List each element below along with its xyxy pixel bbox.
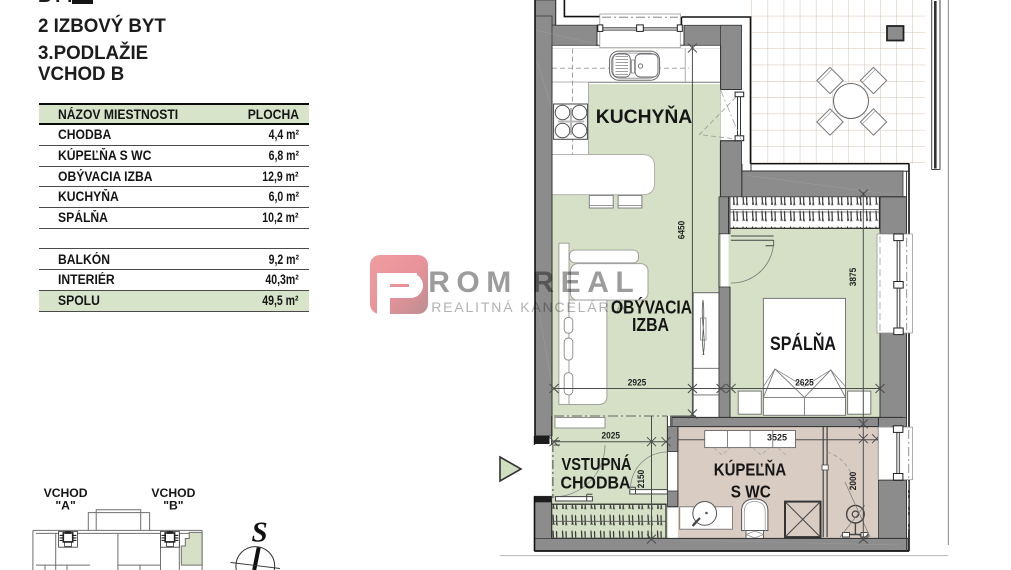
svg-text:SPÁLŇA: SPÁLŇA [770,331,836,355]
svg-text:6450: 6450 [677,221,688,240]
svg-text:KÚPEĽŇA: KÚPEĽŇA [714,458,787,479]
svg-text:S: S [252,517,268,549]
svg-text:IZBA: IZBA [632,314,669,335]
svg-text:2625: 2625 [795,378,814,389]
svg-text:2925: 2925 [628,378,647,389]
svg-text:S WC: S WC [731,481,771,501]
svg-text:"A": "A" [55,498,75,512]
svg-text:2000: 2000 [848,472,859,491]
svg-text:3875: 3875 [848,267,859,286]
svg-text:KUCHYŇA: KUCHYŇA [596,104,692,128]
svg-text:CHODBA: CHODBA [561,472,631,492]
svg-text:VSTUPNÁ: VSTUPNÁ [562,453,632,474]
svg-text:2025: 2025 [602,430,621,441]
svg-text:2150: 2150 [636,470,647,489]
svg-text:"B": "B" [163,498,183,512]
svg-text:3525: 3525 [767,433,788,444]
